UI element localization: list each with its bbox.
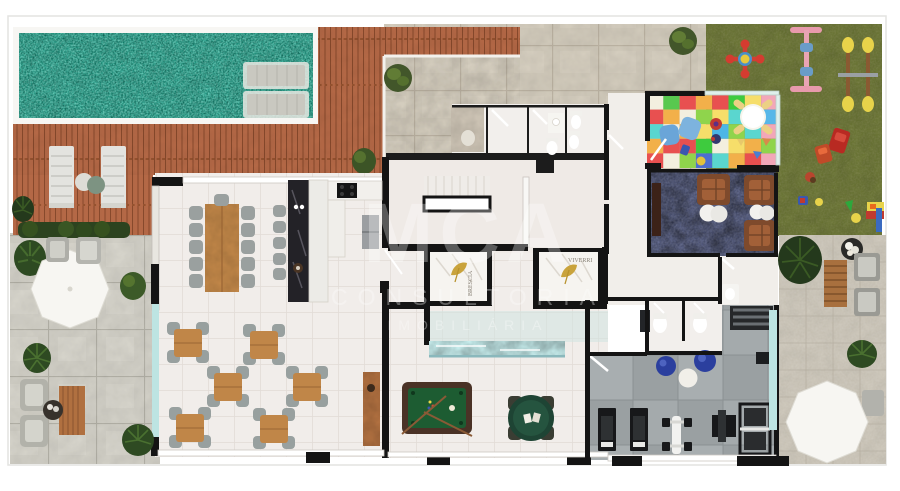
svg-text:CONSULTORIA: CONSULTORIA [331, 284, 605, 310]
svg-text:MCA: MCA [363, 186, 572, 280]
svg-text:IMOBILIÁRIA: IMOBILIÁRIA [387, 317, 548, 333]
